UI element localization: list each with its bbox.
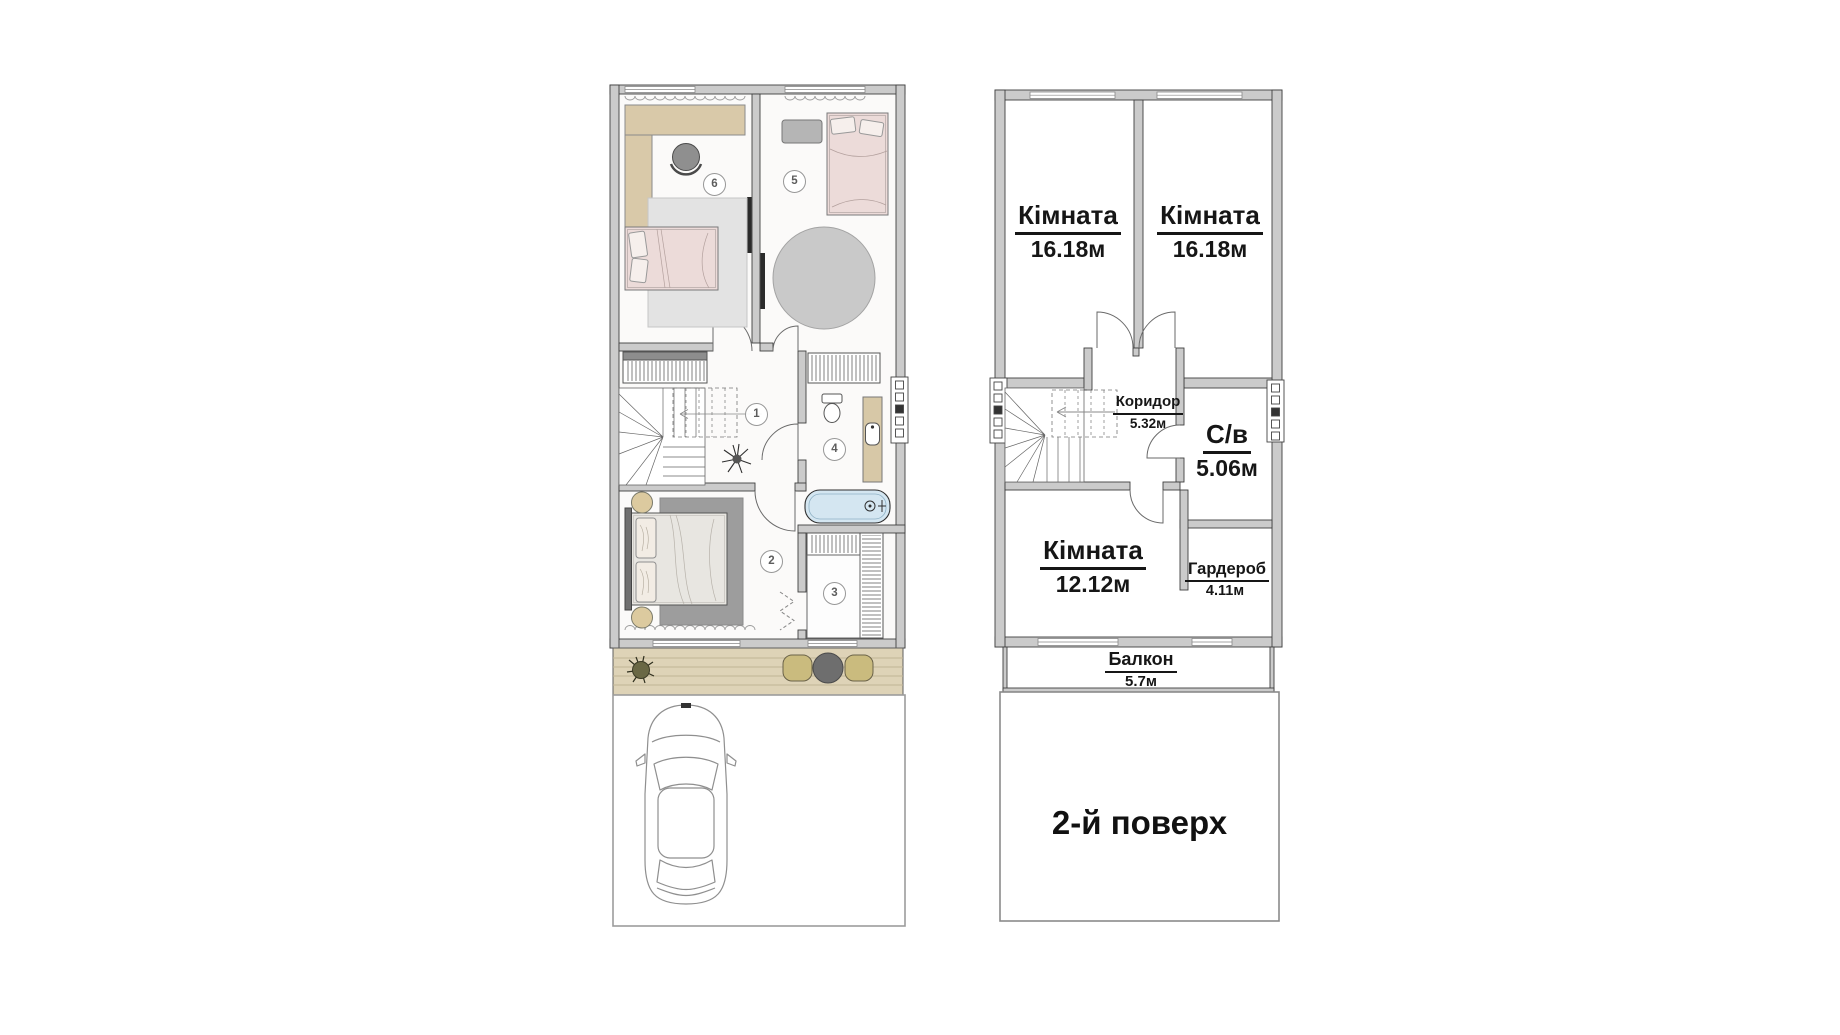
bed-icon bbox=[625, 508, 727, 610]
room-name: Коридор bbox=[1113, 394, 1184, 415]
room-number-2: 2 bbox=[760, 550, 783, 573]
room-number-5: 5 bbox=[783, 170, 806, 193]
vent-shaft-icon bbox=[1267, 380, 1284, 442]
sink-vanity-icon bbox=[863, 397, 882, 482]
room-number-3: 3 bbox=[823, 582, 846, 605]
room-label-kimnata-2: Кімната 16.18м bbox=[1149, 201, 1271, 263]
vent-shaft-icon bbox=[990, 378, 1007, 443]
room-number-1: 1 bbox=[745, 403, 768, 426]
room-label-sv: С/в 5.06м bbox=[1191, 420, 1263, 482]
wardrobe-icon bbox=[623, 352, 707, 383]
terrace-deck bbox=[613, 648, 903, 695]
room-number-4: 4 bbox=[823, 438, 846, 461]
toilet-icon bbox=[822, 394, 842, 423]
floor-plan-furnished: 1 2 3 4 5 6 bbox=[610, 85, 908, 928]
round-rug bbox=[773, 227, 875, 329]
room-area: 5.7м bbox=[1093, 674, 1189, 691]
chair-icon bbox=[783, 655, 812, 681]
office-chair-icon bbox=[671, 144, 701, 175]
car-top-view-icon bbox=[636, 703, 736, 904]
room-area: 5.32м bbox=[1106, 416, 1190, 431]
room-name: Балкон bbox=[1105, 649, 1176, 673]
floor-title: 2-й поверх bbox=[1000, 804, 1279, 842]
nightstand-icon bbox=[632, 607, 653, 628]
closet-icon bbox=[807, 533, 883, 638]
furnished-plan-drawing bbox=[610, 85, 908, 928]
room-area: 12.12м bbox=[1031, 572, 1155, 598]
room-label-kimnata-3: Кімната 12.12м bbox=[1031, 536, 1155, 598]
wardrobe-icon bbox=[808, 353, 880, 383]
vent-shaft-icon bbox=[891, 377, 908, 443]
nightstand-icon bbox=[632, 492, 653, 513]
room-label-harderob: Гардероб 4.11м bbox=[1185, 560, 1265, 600]
room-name: Кімната bbox=[1157, 201, 1263, 235]
bathtub-icon bbox=[805, 490, 890, 523]
room-name: Гардероб bbox=[1185, 560, 1269, 582]
room-label-kimnata-1: Кімната 16.18м bbox=[1007, 201, 1129, 263]
table-icon bbox=[813, 653, 843, 683]
room-name: Кімната bbox=[1040, 536, 1146, 570]
room-area: 16.18м bbox=[1007, 237, 1129, 263]
room-number-6: 6 bbox=[703, 173, 726, 196]
room-label-balkon: Балкон 5.7м bbox=[1093, 649, 1189, 691]
room-area: 16.18м bbox=[1149, 237, 1271, 263]
floor-plan-schematic: Кімната 16.18м Кімната 16.18м Коридор 5.… bbox=[995, 90, 1287, 925]
room-area: 5.06м bbox=[1191, 456, 1263, 482]
bed-icon bbox=[827, 113, 888, 215]
bed-icon bbox=[625, 227, 718, 290]
room-area: 4.11м bbox=[1185, 583, 1265, 599]
chair-icon bbox=[845, 655, 873, 681]
room-name: Кімната bbox=[1015, 201, 1121, 235]
dresser-icon bbox=[782, 120, 822, 143]
room-label-korydor: Коридор 5.32м bbox=[1106, 393, 1190, 431]
room-name: С/в bbox=[1203, 420, 1251, 454]
